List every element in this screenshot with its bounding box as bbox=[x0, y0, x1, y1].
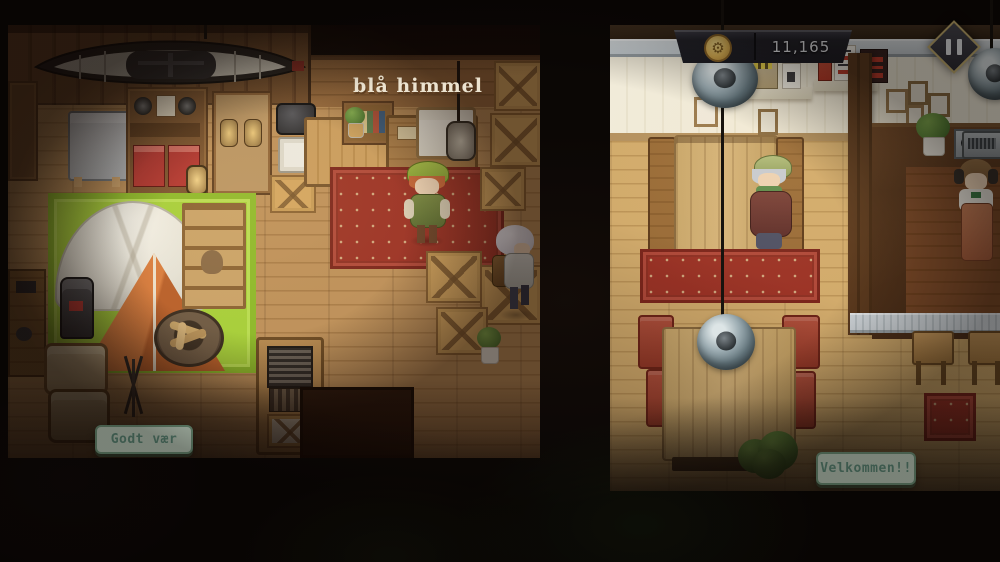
lantern-rack bbox=[212, 91, 272, 195]
grinder-knobs bbox=[754, 63, 772, 69]
shop-floor-sign: blå himmel bbox=[338, 71, 498, 101]
currency-value: 11,165 bbox=[758, 30, 844, 63]
coin-icon: ⚙ bbox=[704, 34, 732, 62]
plant-pot bbox=[348, 123, 364, 138]
bar-stool bbox=[912, 331, 954, 365]
card-mark bbox=[787, 72, 795, 82]
customer-body bbox=[750, 191, 792, 237]
bush-clump bbox=[752, 449, 786, 479]
wagon-grill bbox=[267, 346, 313, 388]
speaker-icon bbox=[178, 97, 196, 115]
player-legs bbox=[510, 287, 518, 309]
cooler-box bbox=[68, 111, 132, 181]
customer-legs bbox=[756, 233, 782, 249]
cafe-room: Velkommen!! bbox=[610, 25, 1000, 491]
headphones-icon bbox=[988, 169, 998, 184]
radio bbox=[962, 131, 1000, 159]
cafe-pillar bbox=[848, 53, 872, 335]
speaker-icon bbox=[134, 97, 152, 115]
desk-gear bbox=[16, 327, 32, 341]
plant-pot bbox=[923, 137, 945, 156]
pendant-lamp bbox=[697, 314, 755, 370]
ladder-shelf bbox=[182, 203, 246, 309]
barista-apron bbox=[961, 203, 993, 261]
plant-pot bbox=[481, 347, 499, 364]
barista-character[interactable] bbox=[952, 159, 1000, 271]
shelf-card bbox=[782, 63, 801, 89]
crate bbox=[490, 113, 540, 167]
welcome-tooltip: Velkommen!! bbox=[816, 452, 916, 485]
jug-label bbox=[69, 301, 83, 311]
canoe-wire bbox=[204, 25, 207, 39]
hanging-lantern-icon bbox=[446, 121, 476, 161]
shopkeeper-character[interactable] bbox=[404, 161, 450, 249]
player-body bbox=[504, 253, 534, 289]
customer-character[interactable] bbox=[744, 153, 796, 257]
player-legs bbox=[521, 285, 529, 305]
camp-chair bbox=[44, 343, 108, 395]
keeper-legs bbox=[429, 225, 437, 243]
barista-bow bbox=[971, 192, 981, 198]
potted-plant bbox=[476, 327, 502, 363]
counter-plant bbox=[916, 113, 950, 155]
crate bbox=[480, 167, 526, 211]
keeper-arm bbox=[404, 199, 414, 219]
keeper-arm bbox=[440, 199, 450, 219]
char-shadow bbox=[500, 309, 532, 321]
teddy-bear bbox=[201, 250, 223, 274]
hanging-lantern-icon bbox=[186, 165, 208, 195]
side-desk bbox=[8, 269, 46, 377]
wall-shelf-left bbox=[8, 81, 38, 181]
hud-divider bbox=[754, 33, 756, 60]
counter-kickboard bbox=[850, 313, 1000, 333]
floor-bush bbox=[738, 431, 798, 481]
barista-face bbox=[965, 173, 987, 190]
weather-tooltip: Godt vær bbox=[95, 425, 193, 454]
char-shadow bbox=[410, 235, 444, 247]
camping-shop-room: blå himmel Godt vær bbox=[8, 25, 540, 458]
shop-doorway bbox=[300, 387, 414, 458]
radio-unit bbox=[156, 95, 176, 117]
booth-rug bbox=[640, 249, 820, 303]
keeper-face bbox=[415, 178, 439, 195]
crate bbox=[494, 61, 540, 111]
water-jug bbox=[60, 277, 94, 339]
shelf-board bbox=[130, 123, 200, 137]
cooler-legs bbox=[74, 177, 120, 187]
plant-leaves bbox=[477, 327, 501, 349]
keeper-legs bbox=[417, 225, 425, 243]
picture-frame bbox=[758, 109, 778, 135]
fire-bowl bbox=[154, 309, 224, 367]
small-rug bbox=[924, 393, 976, 441]
bar-stool bbox=[968, 331, 1000, 365]
radio-grille bbox=[968, 138, 996, 149]
stool-legs bbox=[972, 361, 1000, 385]
stool-legs bbox=[916, 361, 946, 385]
lamp-cord bbox=[990, 0, 993, 52]
crate bbox=[426, 251, 482, 303]
pause-icon bbox=[937, 30, 971, 64]
tripod-stand bbox=[104, 355, 164, 419]
tripod-leg bbox=[132, 359, 135, 417]
game-screen: blå himmel Godt vær bbox=[0, 0, 1000, 562]
desk-gear bbox=[16, 281, 36, 293]
currency-display: ⚙ 11,165 bbox=[656, 30, 852, 63]
headphones-icon bbox=[954, 169, 964, 184]
potted-plant bbox=[344, 107, 366, 137]
red-receiver bbox=[133, 145, 165, 187]
picture-frame bbox=[886, 89, 908, 113]
player-character[interactable] bbox=[492, 225, 538, 321]
lantern-icon bbox=[244, 119, 262, 147]
shop-outside-notch bbox=[310, 25, 540, 55]
lantern-icon bbox=[220, 119, 238, 147]
picture-frame bbox=[908, 81, 928, 105]
